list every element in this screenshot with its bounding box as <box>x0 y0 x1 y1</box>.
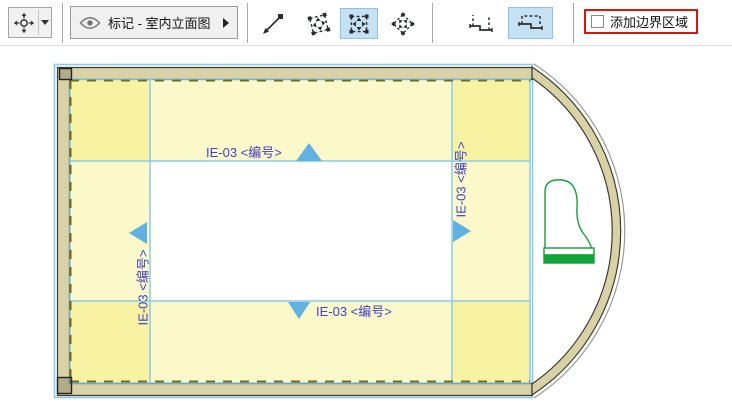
piano-key-bar <box>544 255 594 263</box>
tool-rotated-marquee[interactable] <box>300 8 338 39</box>
chevron-down-icon <box>41 20 49 25</box>
boundary-option-highlight: 添加边界区域 <box>584 9 698 34</box>
toolbar-divider <box>432 3 433 43</box>
tool-single-line[interactable] <box>254 8 292 39</box>
corner-handle-top-left[interactable] <box>60 69 72 80</box>
open-polyline-icon <box>467 11 495 35</box>
grand-piano <box>544 180 594 263</box>
closed-polyline-icon <box>516 11 546 35</box>
marker-label-top: IE-03 <编号> <box>206 142 282 161</box>
diamond-marquee-icon <box>390 11 416 37</box>
marker-label-bottom: IE-03 <编号> <box>316 301 392 320</box>
rectangular-marquee-icon <box>346 11 372 37</box>
marker-style-label: 标记 - 室内立面图 <box>108 13 223 32</box>
tool-closed-polyline[interactable] <box>508 7 553 39</box>
elevation-markers <box>129 143 471 319</box>
toolbar-divider <box>62 3 63 43</box>
corner-handle-bottom-left[interactable] <box>58 378 72 394</box>
add-boundary-checkbox[interactable] <box>591 15 604 28</box>
marker-label-right: IE-03 <编号> <box>451 139 470 221</box>
eye-icon <box>79 16 101 30</box>
tool-rectangular-marquee[interactable] <box>340 8 378 39</box>
piano-keyboard <box>544 248 594 255</box>
toolbar-divider <box>573 3 574 43</box>
add-boundary-label[interactable]: 添加边界区域 <box>610 12 688 31</box>
rotated-marquee-icon <box>306 11 332 37</box>
move-tool-button[interactable] <box>8 7 52 38</box>
move-crosshair-icon <box>9 8 38 37</box>
marker-label-left: IE-03 <编号> <box>133 247 152 329</box>
single-line-icon <box>261 12 285 36</box>
move-tool-dropdown[interactable] <box>39 20 51 25</box>
piano-body <box>545 180 591 248</box>
drawing-area: IE-03 <编号> IE-03 <编号> IE-03 <编号> IE-03 <… <box>0 0 732 408</box>
options-toolbar: 标记 - 室内立面图 <box>0 0 732 46</box>
tool-open-polyline[interactable] <box>459 7 503 39</box>
floorplan-svg <box>0 0 732 408</box>
marker-style-dropdown[interactable]: 标记 - 室内立面图 <box>70 6 238 39</box>
right-arrow-icon <box>223 18 229 28</box>
toolbar-divider <box>247 3 248 43</box>
tool-diamond-marquee[interactable] <box>384 8 422 39</box>
app-window: { "window": {"width": 732, "height": 408… <box>0 0 732 408</box>
